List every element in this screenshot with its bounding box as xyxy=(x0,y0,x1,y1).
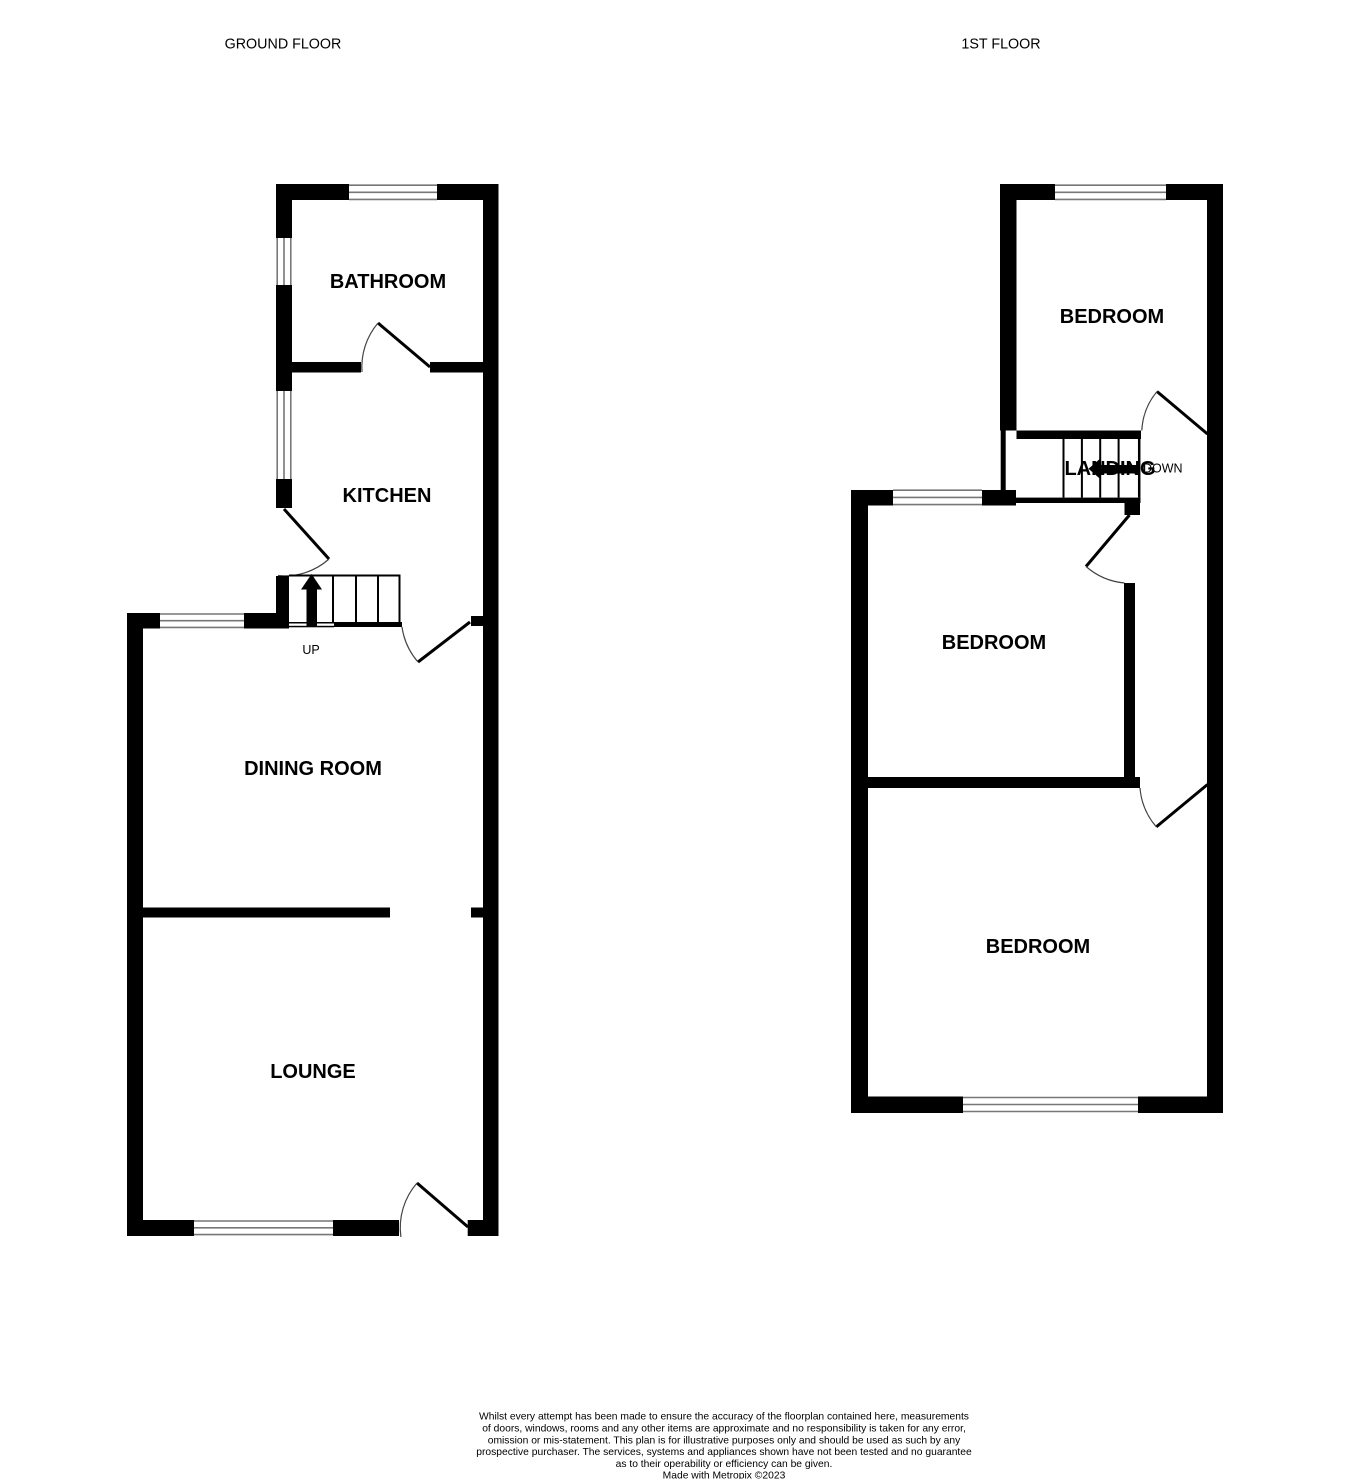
svg-text:BEDROOM: BEDROOM xyxy=(986,936,1090,958)
svg-text:omission or mis-statement. Thi: omission or mis-statement. This plan is … xyxy=(488,1435,961,1446)
svg-text:DINING ROOM: DINING ROOM xyxy=(244,758,382,780)
svg-text:KITCHEN: KITCHEN xyxy=(343,485,432,507)
svg-text:LOUNGE: LOUNGE xyxy=(270,1061,356,1083)
svg-text:prospective purchaser. The ser: prospective purchaser. The services, sys… xyxy=(476,1447,972,1458)
svg-text:Whilst every attempt has been: Whilst every attempt has been made to en… xyxy=(479,1412,969,1423)
svg-text:as to their operability or eff: as to their operability or efficiency ca… xyxy=(616,1459,833,1470)
svg-text:DOWN: DOWN xyxy=(1143,462,1183,476)
svg-text:BEDROOM: BEDROOM xyxy=(1060,306,1164,328)
svg-text:BEDROOM: BEDROOM xyxy=(942,632,1046,654)
svg-text:UP: UP xyxy=(302,643,319,657)
svg-text:of doors, windows, rooms and a: of doors, windows, rooms and any other i… xyxy=(482,1424,966,1435)
svg-text:GROUND FLOOR: GROUND FLOOR xyxy=(225,36,342,52)
svg-text:Made with Metropix ©2023: Made with Metropix ©2023 xyxy=(663,1471,786,1479)
svg-text:BATHROOM: BATHROOM xyxy=(330,271,446,293)
svg-text:1ST FLOOR: 1ST FLOOR xyxy=(961,36,1040,52)
